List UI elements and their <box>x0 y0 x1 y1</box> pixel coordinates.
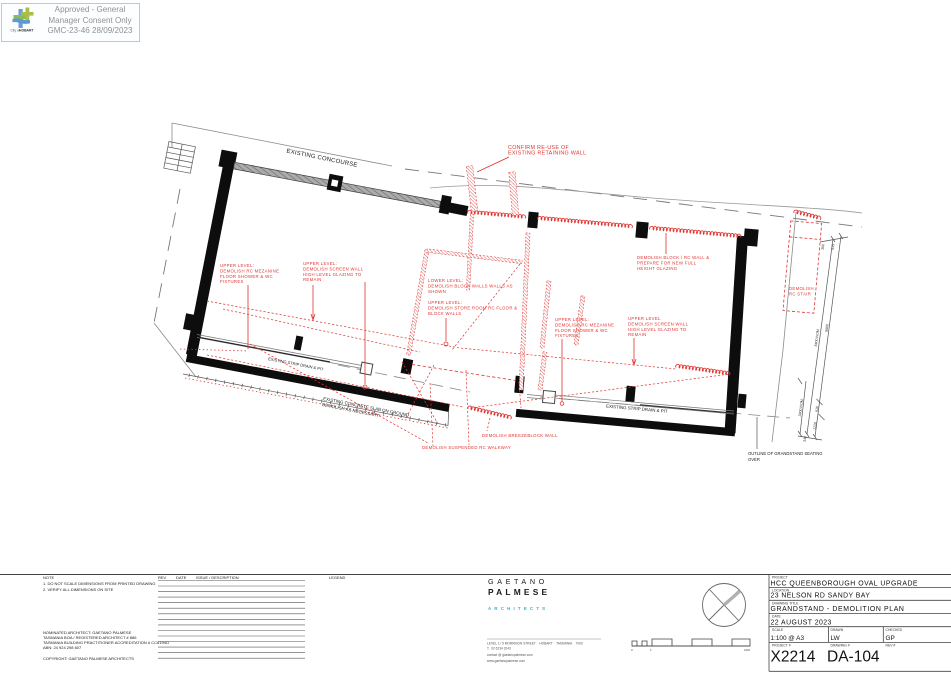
svg-text:GAETANO: GAETANO <box>488 577 548 586</box>
svg-text:LW: LW <box>831 635 841 642</box>
svg-text:DRAWN: DRAWN <box>831 628 844 632</box>
svg-text:1:100 @ A3: 1:100 @ A3 <box>771 635 805 642</box>
svg-text:DA-104: DA-104 <box>827 649 880 666</box>
svg-text:X2214: X2214 <box>771 649 816 666</box>
svg-text:PALMESE: PALMESE <box>488 587 550 597</box>
svg-text:23 NELSON RD SANDY BAY: 23 NELSON RD SANDY BAY <box>771 593 871 600</box>
svg-text:10M: 10M <box>744 648 750 652</box>
svg-text:PROJECT #: PROJECT # <box>772 643 791 647</box>
svg-text:1: 1 <box>650 648 652 652</box>
svg-text:www.gaetanopalmese.com: www.gaetanopalmese.com <box>487 659 525 663</box>
svg-text:T. 02 6234 3243: T. 02 6234 3243 <box>487 647 511 651</box>
svg-text:GRANDSTAND - DEMOLITION PLAN: GRANDSTAND - DEMOLITION PLAN <box>771 606 905 613</box>
svg-text:CHECKED: CHECKED <box>886 628 903 632</box>
svg-text:DRAWING TITLE: DRAWING TITLE <box>772 601 799 605</box>
svg-text:HCC QUEENBOROUGH OVAL UPGRADE: HCC QUEENBOROUGH OVAL UPGRADE <box>771 581 919 588</box>
svg-text:contact @ gaetanopalmese.com: contact @ gaetanopalmese.com <box>487 653 533 657</box>
svg-text:LEVEL 1 / 5 MORRISON STREET: LEVEL 1 / 5 MORRISON STREET HOBART TASMA… <box>487 642 583 646</box>
svg-text:DATE: DATE <box>772 614 782 618</box>
svg-text:22 AUGUST 2023: 22 AUGUST 2023 <box>771 619 832 626</box>
svg-text:SCALE: SCALE <box>772 628 784 632</box>
svg-text:REV #: REV # <box>886 643 896 647</box>
svg-text:PROJECT: PROJECT <box>772 576 788 580</box>
svg-text:DRAWING #: DRAWING # <box>831 643 850 647</box>
svg-text:HOBART: HOBART <box>19 29 34 33</box>
svg-text:0: 0 <box>631 648 633 652</box>
svg-text:GP: GP <box>886 635 895 642</box>
svg-text:ARCHITECTS: ARCHITECTS <box>488 606 548 611</box>
